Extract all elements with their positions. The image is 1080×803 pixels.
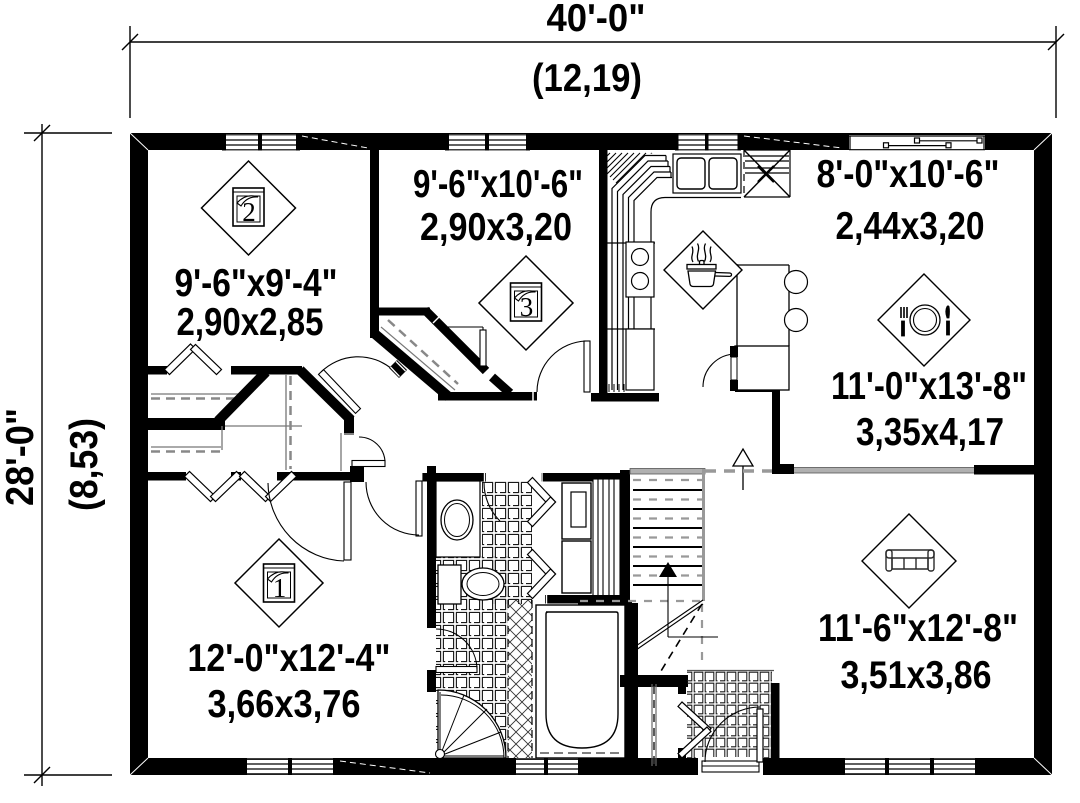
- svg-text:1: 1: [273, 573, 287, 603]
- svg-text:2: 2: [242, 197, 256, 227]
- svg-text:3,35x4,17: 3,35x4,17: [856, 411, 1004, 454]
- svg-text:12'-0"x12'-4": 12'-0"x12'-4": [188, 637, 391, 680]
- svg-text:9'-6"x10'-6": 9'-6"x10'-6": [413, 163, 583, 206]
- svg-text:11'-0"x13'-8": 11'-0"x13'-8": [831, 365, 1027, 408]
- svg-text:9'-6"x9'-4": 9'-6"x9'-4": [175, 262, 338, 305]
- svg-text:3: 3: [520, 292, 534, 322]
- svg-text:28'-0": 28'-0": [0, 408, 42, 506]
- svg-text:3,51x3,86: 3,51x3,86: [841, 654, 992, 697]
- svg-text:40'-0": 40'-0": [547, 0, 646, 40]
- svg-text:2,90x2,85: 2,90x2,85: [177, 301, 324, 344]
- svg-text:(8,53): (8,53): [63, 418, 106, 511]
- svg-text:2,90x3,20: 2,90x3,20: [420, 206, 572, 249]
- svg-text:2,44x3,20: 2,44x3,20: [836, 205, 985, 248]
- svg-text:11'-6"x12'-8": 11'-6"x12'-8": [818, 607, 1018, 650]
- svg-text:3,66x3,76: 3,66x3,76: [208, 683, 361, 726]
- svg-text:8'-0"x10'-6": 8'-0"x10'-6": [817, 153, 1000, 196]
- svg-text:(12,19): (12,19): [532, 57, 642, 100]
